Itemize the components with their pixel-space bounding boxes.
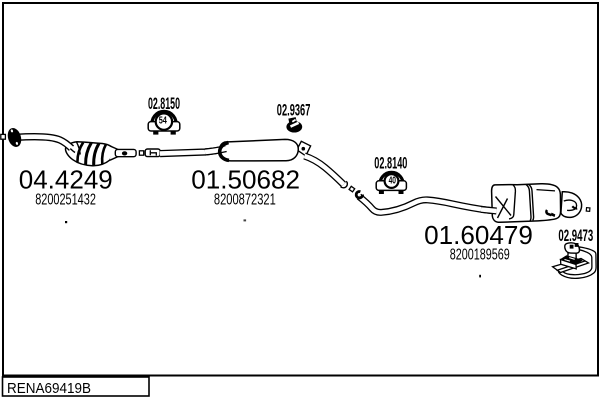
svg-text:8200251432: 8200251432 (35, 192, 96, 209)
svg-text:02.9367: 02.9367 (277, 102, 311, 120)
svg-text:01.60479: 01.60479 (424, 220, 533, 250)
svg-text:02.8140: 02.8140 (374, 155, 407, 173)
svg-text:8200189569: 8200189569 (450, 246, 510, 263)
svg-text:02.9473: 02.9473 (558, 227, 593, 245)
svg-text:40: 40 (389, 175, 397, 186)
svg-text:04.4249: 04.4249 (19, 165, 113, 195)
svg-text:RENA69419B: RENA69419B (7, 380, 91, 397)
svg-text:8200872321: 8200872321 (214, 192, 276, 209)
svg-text:01.50682: 01.50682 (191, 165, 300, 195)
svg-text:54: 54 (159, 115, 167, 127)
